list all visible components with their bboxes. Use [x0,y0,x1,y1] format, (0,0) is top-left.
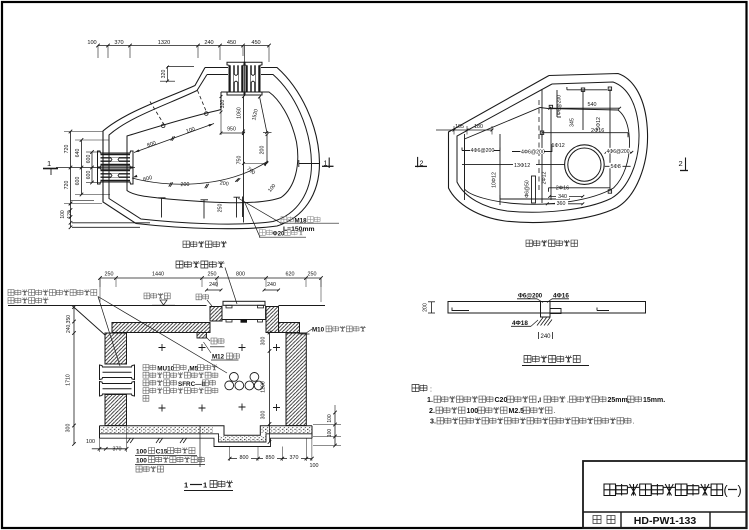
svg-text:25mm,: 25mm, [608,397,630,404]
svg-text:540: 540 [588,102,597,108]
svg-text:Φ6@50: Φ6@50 [525,180,531,198]
svg-text:1440: 1440 [152,272,164,278]
svg-text:.: . [554,408,556,415]
svg-text:HD-PW1-133: HD-PW1-133 [634,515,697,527]
svg-text:1060: 1060 [237,107,243,119]
svg-text:620: 620 [286,272,295,278]
svg-text:): ) [738,484,742,498]
svg-text:340: 340 [558,194,567,200]
svg-text:M18: M18 [295,217,308,224]
svg-text:2Φ16: 2Φ16 [556,185,569,191]
svg-text:.: . [633,419,635,426]
svg-text:250: 250 [308,272,317,278]
svg-text:120: 120 [67,210,73,219]
svg-text:10Φ12: 10Φ12 [492,172,498,188]
svg-text:360: 360 [557,201,566,207]
svg-text:100: 100 [136,449,147,456]
svg-text:M10: M10 [312,327,325,334]
svg-text:450: 450 [227,40,236,46]
svg-text:250: 250 [208,272,217,278]
svg-text:1Φ12: 1Φ12 [552,143,565,149]
svg-text:2Φ12: 2Φ12 [542,171,548,184]
svg-text:250: 250 [105,272,114,278]
svg-text:,M5: ,M5 [188,365,199,372]
svg-text:600: 600 [75,177,81,186]
svg-text:1710: 1710 [66,374,72,386]
svg-text:600: 600 [86,155,92,164]
svg-text:100: 100 [136,458,147,465]
svg-text:,I: ,I [538,397,542,404]
svg-text:M2.5: M2.5 [509,408,525,415]
svg-text:180: 180 [474,124,483,130]
svg-text:720: 720 [64,145,70,154]
svg-text:1: 1 [203,481,207,490]
svg-text:250: 250 [218,204,224,213]
svg-text:SFRC—II: SFRC—II [178,381,205,388]
svg-text:2.: 2. [429,407,435,415]
svg-text:1200: 1200 [261,381,267,393]
svg-text:370: 370 [114,40,123,46]
svg-text:4Φ6@200: 4Φ6@200 [471,148,495,154]
svg-text:1: 1 [47,159,51,168]
svg-text:,: , [567,397,569,404]
svg-text:Φ6@200: Φ6@200 [557,95,563,115]
svg-text:1320: 1320 [158,40,170,46]
svg-text:370: 370 [113,447,122,453]
svg-text:4Φ6@200: 4Φ6@200 [521,150,545,156]
svg-text:320: 320 [220,100,226,109]
svg-text:600: 600 [86,171,92,180]
svg-text:105: 105 [455,124,464,130]
svg-text:320: 320 [161,70,167,79]
svg-text:300: 300 [66,424,72,433]
svg-text:5Φ8: 5Φ8 [611,164,621,170]
svg-text:2: 2 [679,159,683,168]
svg-text:300: 300 [261,411,267,420]
svg-text:100: 100 [467,408,479,415]
svg-text:850: 850 [266,455,275,461]
svg-text:100: 100 [86,439,95,445]
svg-text:Φ20: Φ20 [273,231,286,238]
svg-text:370: 370 [290,455,299,461]
svg-text:100: 100 [60,210,66,219]
svg-text:13Φ12: 13Φ12 [514,163,530,169]
svg-text:5Φ12: 5Φ12 [596,117,602,130]
svg-text:640: 640 [75,149,81,158]
svg-text:240: 240 [267,282,276,288]
svg-text:100: 100 [327,414,333,423]
svg-text:15mm.: 15mm. [643,397,665,404]
svg-text:300: 300 [261,337,267,346]
svg-text:100: 100 [87,40,96,46]
svg-text:240: 240 [209,282,218,288]
svg-text:200: 200 [180,182,189,188]
svg-text:800: 800 [236,272,245,278]
svg-text::: : [430,387,432,394]
svg-text:200: 200 [260,146,266,155]
svg-text:MU10: MU10 [157,365,174,372]
svg-text:3.: 3. [430,418,436,426]
svg-text:C15: C15 [156,449,168,456]
svg-text:100: 100 [327,429,333,438]
svg-text:450: 450 [251,40,260,46]
svg-text:345: 345 [570,118,576,127]
svg-text:950: 950 [227,127,236,133]
svg-text:720: 720 [64,181,70,190]
svg-text:240,350: 240,350 [66,315,72,333]
svg-text:240: 240 [540,334,551,340]
svg-text:M12: M12 [212,354,225,361]
svg-text:1: 1 [184,481,188,490]
svg-text:200: 200 [219,180,229,187]
svg-text:800: 800 [240,455,249,461]
svg-text:4Φ6@200: 4Φ6@200 [607,149,630,155]
svg-text:C20: C20 [495,397,508,404]
svg-text:100: 100 [310,463,319,469]
svg-text:1.: 1. [427,396,433,404]
svg-text:240: 240 [204,40,213,46]
svg-text:750: 750 [237,156,243,165]
svg-text:200: 200 [423,303,429,312]
